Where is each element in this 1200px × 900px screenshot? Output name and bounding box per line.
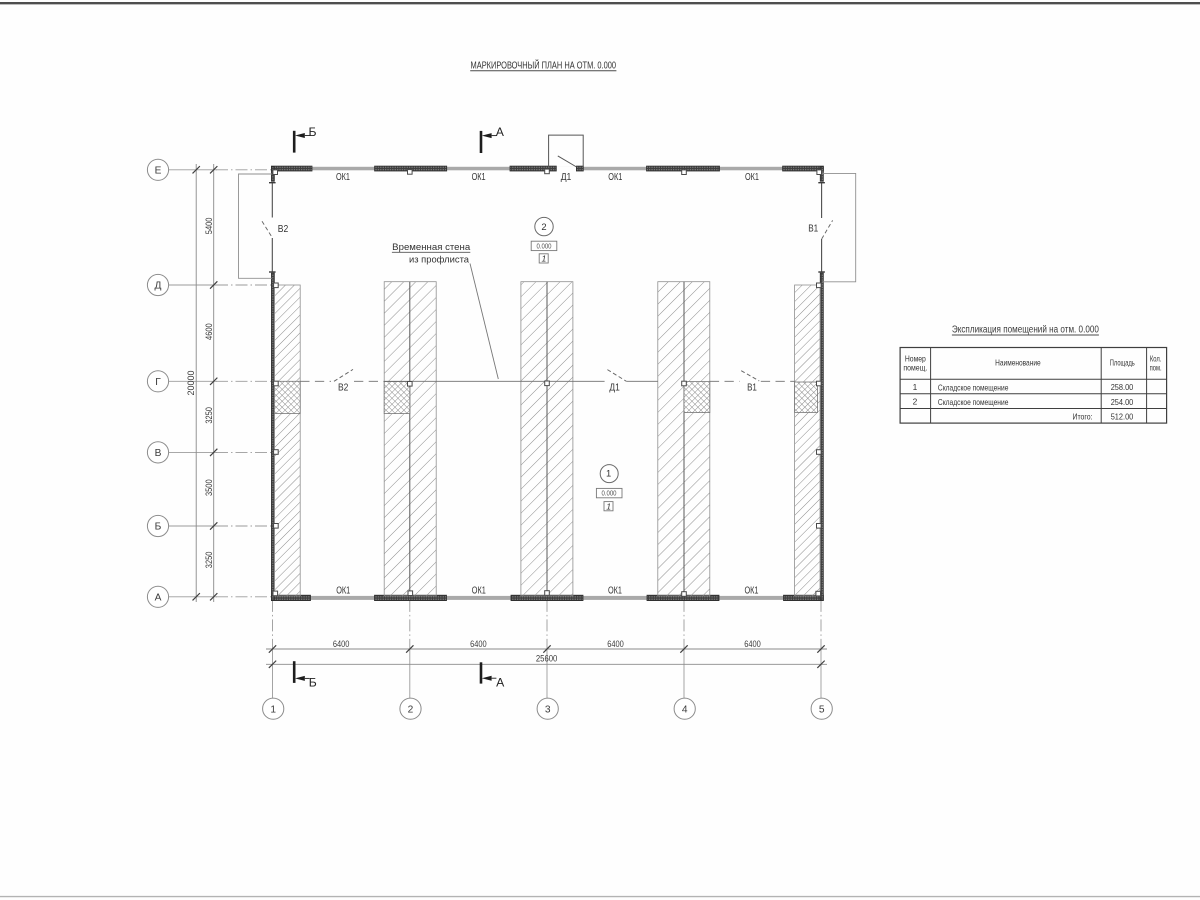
svg-text:5: 5: [819, 704, 825, 715]
svg-text:1: 1: [606, 468, 611, 479]
svg-text:В2: В2: [338, 382, 349, 393]
svg-text:помещ.: помещ.: [903, 364, 927, 373]
svg-text:3500: 3500: [204, 479, 214, 496]
svg-text:Складское помещение: Складское помещение: [938, 383, 1009, 393]
svg-text:пом.: пом.: [1150, 364, 1162, 373]
svg-text:А: А: [155, 592, 162, 603]
svg-text:4: 4: [682, 704, 688, 715]
svg-text:1: 1: [542, 254, 547, 264]
svg-text:ОК1: ОК1: [745, 172, 759, 183]
svg-text:254.00: 254.00: [1111, 397, 1134, 407]
svg-text:Экспликация помещений на отм.: Экспликация помещений на отм. 0.000: [952, 324, 1099, 335]
svg-text:3250: 3250: [204, 407, 214, 424]
svg-text:Итого:: Итого:: [1073, 411, 1093, 421]
svg-text:Временная стена: Временная стена: [392, 242, 470, 252]
svg-text:6400: 6400: [470, 639, 487, 649]
svg-text:Д1: Д1: [561, 172, 572, 183]
svg-text:В2: В2: [278, 224, 289, 235]
svg-text:Г: Г: [155, 377, 161, 388]
svg-text:6400: 6400: [607, 639, 624, 649]
svg-text:В1: В1: [747, 382, 757, 393]
svg-text:3250: 3250: [204, 552, 214, 569]
svg-text:Б: Б: [309, 125, 317, 139]
svg-text:Складское помещение: Складское помещение: [938, 397, 1009, 407]
svg-text:3: 3: [545, 704, 551, 715]
svg-text:В: В: [155, 448, 162, 459]
svg-text:2: 2: [408, 704, 414, 715]
svg-text:20000: 20000: [186, 371, 196, 396]
svg-text:Д1: Д1: [609, 382, 620, 393]
svg-text:1: 1: [270, 704, 276, 715]
svg-text:Номер: Номер: [905, 355, 926, 364]
svg-text:Д: Д: [155, 281, 162, 292]
svg-text:из профлиста: из профлиста: [409, 254, 469, 264]
svg-text:Е: Е: [155, 165, 162, 176]
svg-text:Б: Б: [155, 522, 162, 533]
svg-text:ОК1: ОК1: [745, 585, 759, 596]
svg-text:6400: 6400: [744, 639, 761, 649]
svg-text:ОК1: ОК1: [472, 585, 486, 596]
svg-text:5400: 5400: [204, 218, 214, 235]
svg-text:1: 1: [913, 382, 918, 392]
svg-text:В1: В1: [808, 223, 818, 234]
svg-text:0.000: 0.000: [602, 489, 617, 498]
svg-text:2: 2: [913, 397, 918, 407]
svg-text:А: А: [496, 675, 505, 689]
svg-text:Б: Б: [309, 675, 317, 689]
svg-text:ОК1: ОК1: [472, 172, 486, 183]
svg-text:ОК1: ОК1: [336, 585, 350, 596]
svg-text:Площадь: Площадь: [1110, 359, 1135, 368]
svg-text:Кол.: Кол.: [1150, 355, 1162, 364]
svg-text:ОК1: ОК1: [336, 172, 350, 183]
svg-text:А: А: [496, 125, 505, 139]
svg-text:0.000: 0.000: [537, 241, 552, 250]
svg-text:ОК1: ОК1: [608, 585, 622, 596]
svg-text:ОК1: ОК1: [608, 172, 622, 183]
svg-text:512.00: 512.00: [1111, 411, 1134, 421]
svg-text:4600: 4600: [204, 323, 214, 340]
svg-text:МАРКИРОВОЧНЫЙ ПЛАН НА ОТМ. 0.0: МАРКИРОВОЧНЫЙ ПЛАН НА ОТМ. 0.000: [471, 59, 617, 72]
svg-text:258.00: 258.00: [1111, 382, 1134, 392]
svg-text:2: 2: [541, 221, 546, 232]
svg-text:1: 1: [606, 501, 611, 511]
svg-text:25600: 25600: [536, 654, 558, 664]
svg-text:6400: 6400: [333, 639, 350, 649]
svg-text:Наименование: Наименование: [995, 358, 1041, 367]
